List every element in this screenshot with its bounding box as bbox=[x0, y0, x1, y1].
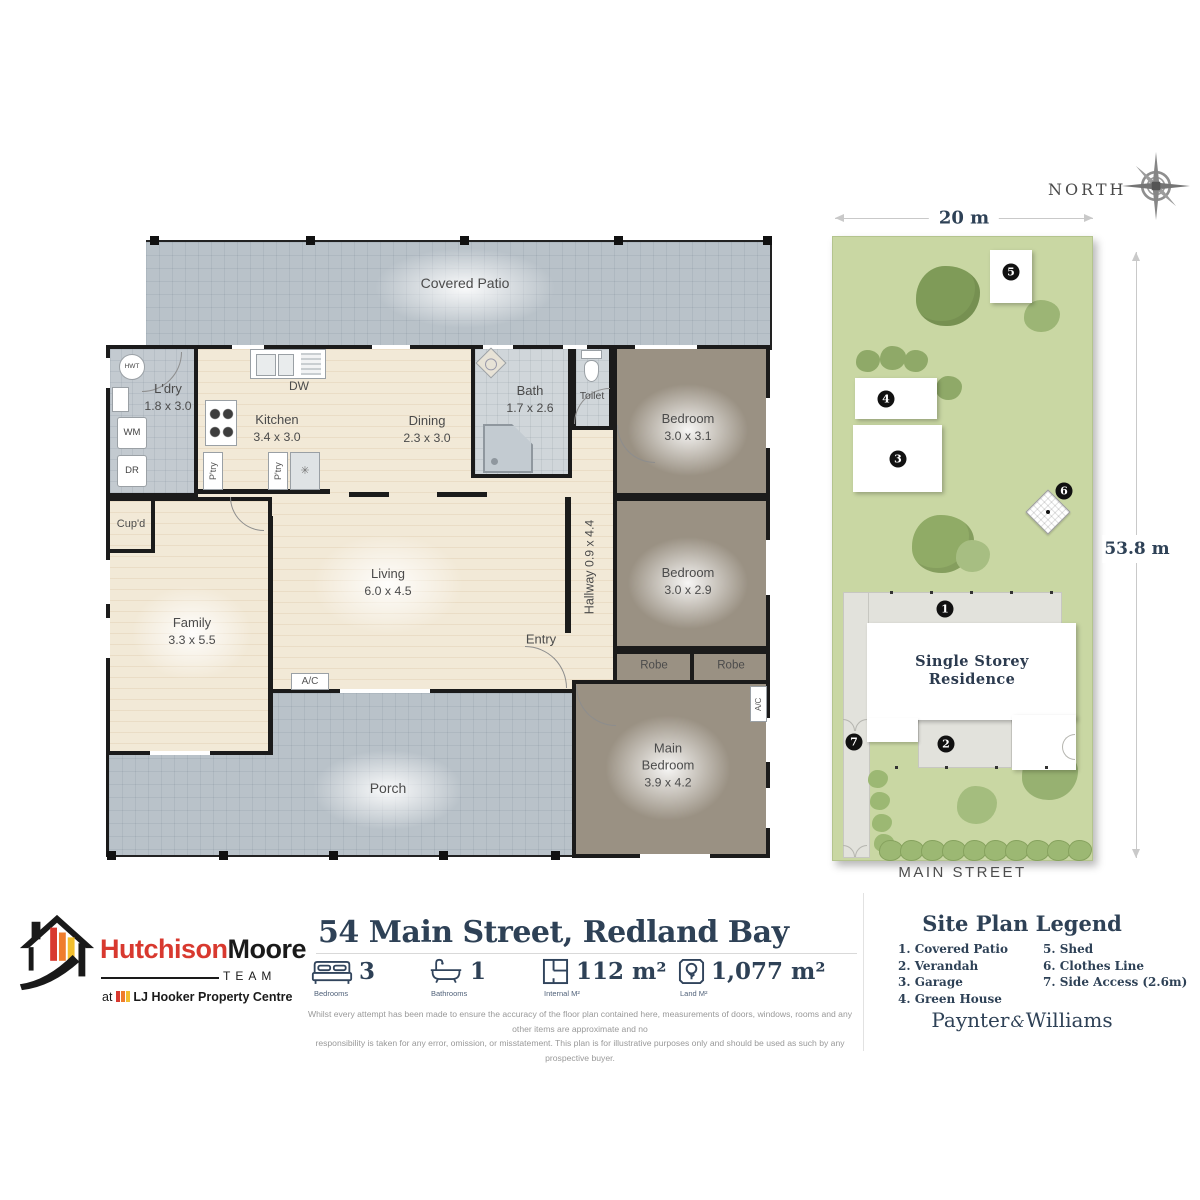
window bbox=[766, 718, 770, 762]
legend-item: 5. Shed bbox=[1043, 941, 1187, 958]
window bbox=[766, 788, 770, 828]
patio-strip-post bbox=[1010, 591, 1013, 594]
window bbox=[563, 345, 587, 349]
legend-column-2: 5. Shed 6. Clothes Line 7. Side Access (… bbox=[1043, 941, 1187, 991]
room-label-robe-2: Robe bbox=[717, 659, 745, 674]
pantry-cupboard: P'try bbox=[203, 452, 223, 490]
sink-bowl bbox=[278, 354, 294, 376]
room-label-living: Living6.0 x 4.5 bbox=[364, 566, 411, 600]
stat-bedrooms-label: Bedrooms bbox=[314, 990, 348, 998]
room-label-entry: Entry bbox=[526, 632, 556, 649]
verandah-post bbox=[945, 766, 948, 769]
greenhouse bbox=[855, 378, 937, 419]
window bbox=[150, 751, 210, 755]
stat-land-label: Land M² bbox=[680, 990, 708, 998]
air-conditioner: A/C bbox=[750, 686, 767, 722]
disclaimer-line-2: responsibility is taken for any error, o… bbox=[300, 1036, 860, 1065]
room-label-hallway: Hallway 0.9 x 4.4 bbox=[582, 520, 599, 614]
window bbox=[640, 854, 710, 858]
room-label-bedroom-1: Bedroom3.0 x 3.1 bbox=[662, 411, 715, 445]
window bbox=[766, 540, 770, 595]
hot-water-tank: HWT bbox=[119, 354, 145, 380]
north-label: NORTH bbox=[1048, 180, 1127, 199]
legend-item: 1. Covered Patio bbox=[898, 941, 1008, 958]
room-label-bath: Bath1.7 x 2.6 bbox=[506, 383, 553, 417]
legend-column-1: 1. Covered Patio 2. Verandah 3. Garage 4… bbox=[898, 941, 1008, 1007]
footer-divider bbox=[863, 893, 864, 1051]
legend-item: 6. Clothes Line bbox=[1043, 958, 1187, 975]
kitchen-sink-unit: ✳ bbox=[290, 452, 320, 490]
legend-item: 3. Garage bbox=[898, 974, 1008, 991]
window bbox=[106, 560, 110, 604]
patio-strip-post bbox=[890, 591, 893, 594]
kitchen-sink-counter bbox=[250, 349, 326, 379]
room-label-porch: Porch bbox=[370, 779, 407, 797]
floorplan-icon bbox=[542, 958, 569, 985]
room-label-dining: Dining2.3 x 3.0 bbox=[403, 413, 450, 447]
patio-post bbox=[150, 236, 159, 245]
toilet-cistern bbox=[581, 350, 602, 359]
room-label-kitchen: Kitchen3.4 x 3.0 bbox=[253, 412, 300, 446]
dishwasher-label: DW bbox=[289, 379, 309, 395]
patio-post bbox=[306, 236, 315, 245]
washing-machine: WM bbox=[117, 417, 147, 449]
page-title: 54 Main Street, Redland Bay bbox=[318, 915, 789, 950]
brand-name: HutchisonMoore bbox=[100, 936, 306, 963]
hutchison-moore-logo-icon bbox=[16, 912, 98, 994]
patio-strip-post bbox=[970, 591, 973, 594]
window bbox=[106, 618, 110, 658]
stat-land-value: 1,077 m² bbox=[711, 960, 825, 983]
land-icon bbox=[678, 958, 705, 985]
street-label: MAIN STREET bbox=[832, 864, 1093, 881]
room-label-cupd: Cup'd bbox=[117, 517, 145, 531]
legend-item: 7. Side Access (2.6m) bbox=[1043, 974, 1187, 991]
dryer: DR bbox=[117, 455, 147, 487]
window bbox=[340, 689, 430, 693]
verandah-strip bbox=[918, 718, 1012, 768]
room-label-family: Family3.3 x 5.5 bbox=[168, 615, 215, 649]
legend-item: 4. Green House bbox=[898, 991, 1008, 1008]
width-dimension: 20 m bbox=[835, 210, 1093, 228]
site-badge-2: 2 bbox=[938, 736, 955, 753]
paynter-williams-logo: Paynter&Williams bbox=[888, 1008, 1156, 1032]
legend-item: 2. Verandah bbox=[898, 958, 1008, 975]
vanity-basin bbox=[483, 356, 500, 373]
lj-hooker-stripes-icon bbox=[116, 991, 130, 1005]
laundry-tub-icon bbox=[112, 387, 129, 412]
patio-post bbox=[763, 236, 772, 245]
clothes-line-pole bbox=[1046, 510, 1050, 514]
verandah-post bbox=[995, 766, 998, 769]
window bbox=[483, 345, 513, 349]
arrow-up-icon bbox=[1132, 252, 1140, 261]
site-badge-3: 3 bbox=[890, 451, 907, 468]
legend-heading: Site Plan Legend bbox=[888, 911, 1156, 936]
pantry-cupboard: P'try bbox=[268, 452, 288, 490]
brand-team: TEAM bbox=[223, 970, 276, 982]
room-label-toilet: Toilet bbox=[580, 390, 605, 404]
room-label-covered-patio: Covered Patio bbox=[421, 274, 510, 292]
window bbox=[766, 398, 770, 448]
room-label-main-bedroom: Main Bedroom 3.9 x 4.2 bbox=[642, 741, 695, 792]
covered-patio-strip bbox=[868, 592, 1062, 625]
stat-bathrooms-value: 1 bbox=[470, 960, 486, 983]
porch-post bbox=[219, 851, 228, 860]
bathtub-icon bbox=[429, 956, 463, 986]
title-rule bbox=[316, 953, 857, 954]
sink-bowl bbox=[256, 354, 276, 376]
porch-post bbox=[551, 851, 560, 860]
team-rule bbox=[101, 977, 219, 979]
verandah-post bbox=[1045, 766, 1048, 769]
bed-icon bbox=[311, 958, 353, 986]
shower-drain bbox=[491, 458, 498, 465]
site-badge-4: 4 bbox=[878, 391, 895, 408]
residence-label: Single StoreyResidence bbox=[872, 653, 1072, 689]
porch-post bbox=[439, 851, 448, 860]
room-label-bedroom-2: Bedroom3.0 x 2.9 bbox=[662, 565, 715, 599]
patio-strip-post bbox=[1050, 591, 1053, 594]
stat-internal-value: 112 m² bbox=[576, 960, 666, 983]
brand-name-red: Hutchison bbox=[100, 934, 228, 964]
site-badge-1: 1 bbox=[937, 601, 954, 618]
verandah-post bbox=[895, 766, 898, 769]
stat-internal-label: Internal M² bbox=[544, 990, 580, 998]
window bbox=[635, 345, 697, 349]
brand-tagline: at LJ Hooker Property Centre bbox=[102, 991, 292, 1005]
wall-living-hallway bbox=[565, 497, 571, 633]
stove-cooktop bbox=[205, 400, 237, 446]
wall-living-top-stub bbox=[437, 492, 487, 497]
air-conditioner: A/C bbox=[291, 673, 329, 690]
disclaimer-line-1: Whilst every attempt has been made to en… bbox=[300, 1007, 860, 1036]
site-badge-6: 6 bbox=[1056, 483, 1073, 500]
patio-strip-post bbox=[930, 591, 933, 594]
arrow-down-icon bbox=[1132, 849, 1140, 858]
compass-icon bbox=[1122, 152, 1190, 220]
site-badge-7: 7 bbox=[846, 734, 863, 751]
disclaimer: Whilst every attempt has been made to en… bbox=[300, 1007, 860, 1065]
covered-patio-area bbox=[146, 240, 772, 350]
patio-post bbox=[614, 236, 623, 245]
window bbox=[372, 345, 410, 349]
porch-post bbox=[329, 851, 338, 860]
room-label-laundry: L'dry1.8 x 3.0 bbox=[144, 381, 191, 415]
wall-living-top-stub bbox=[349, 492, 389, 497]
wall-family-living bbox=[268, 516, 273, 755]
toilet-bowl bbox=[584, 360, 599, 382]
stat-bedrooms-value: 3 bbox=[359, 960, 375, 983]
brand-name-black: Moore bbox=[228, 934, 307, 964]
patio-post bbox=[460, 236, 469, 245]
stat-bathrooms-label: Bathrooms bbox=[431, 990, 467, 998]
site-badge-5: 5 bbox=[1003, 264, 1020, 281]
arrow-left-icon bbox=[835, 214, 844, 222]
floorplan-page: Covered Patio Porch HWT WM DR L'dry1.8 x… bbox=[0, 0, 1200, 1200]
residence-footprint-left-leg bbox=[867, 718, 918, 742]
porch-post bbox=[107, 851, 116, 860]
room-label-robe-1: Robe bbox=[640, 659, 668, 674]
dish-rack bbox=[301, 353, 321, 375]
arrow-right-icon bbox=[1084, 214, 1093, 222]
window bbox=[106, 358, 110, 388]
depth-dimension: 53.8 m bbox=[1128, 252, 1146, 858]
